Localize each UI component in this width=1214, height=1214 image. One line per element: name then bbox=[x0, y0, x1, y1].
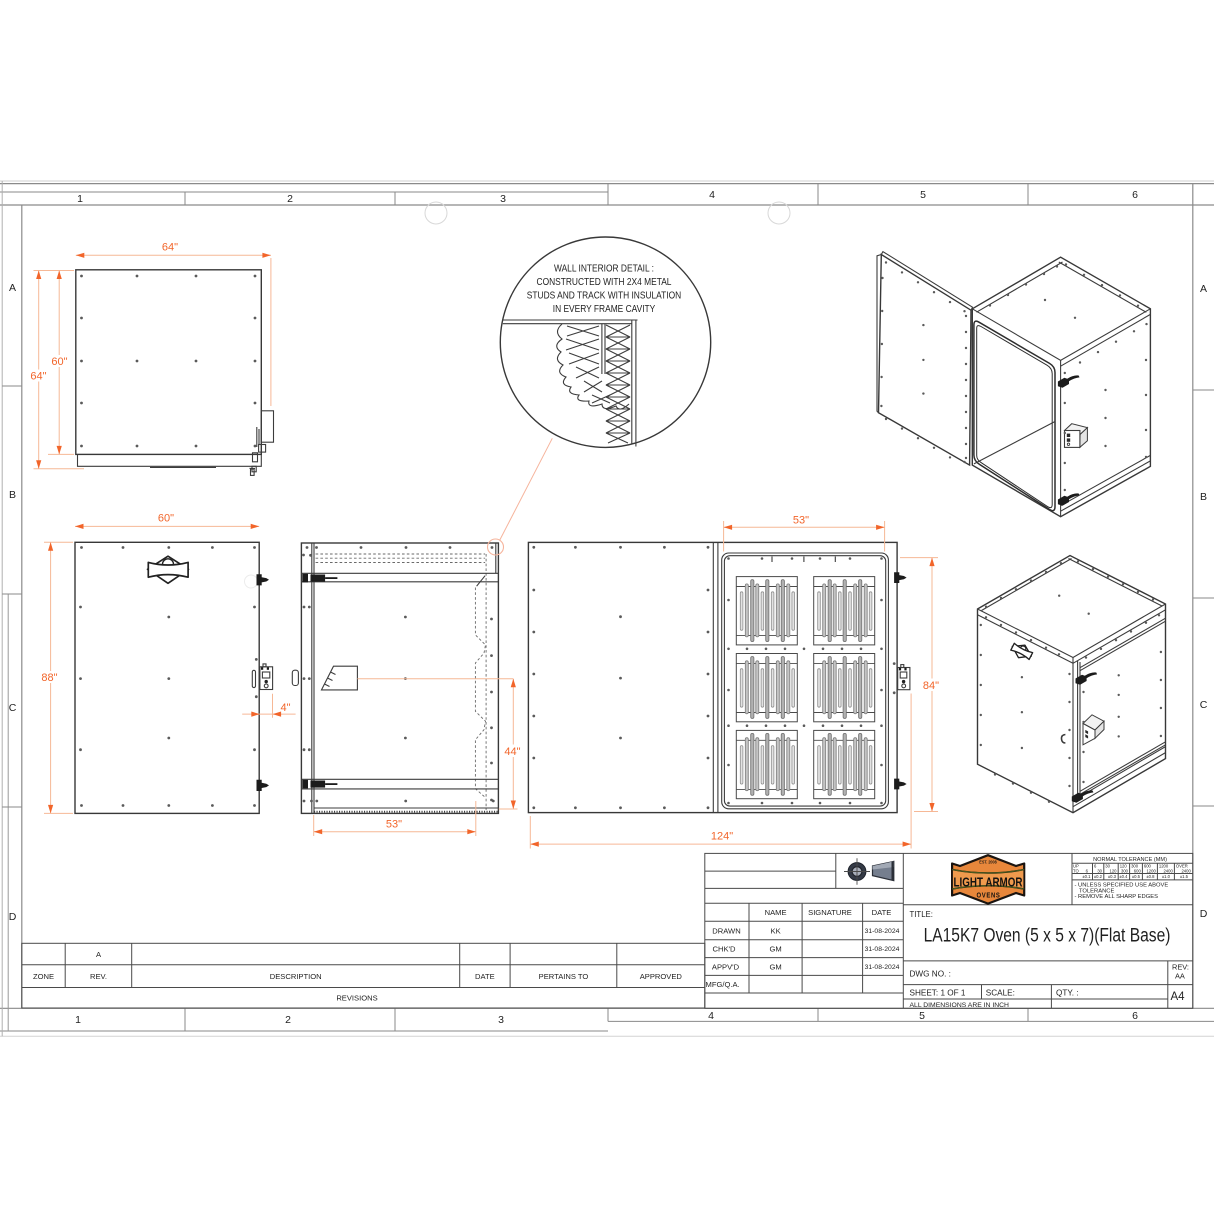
svg-text:6: 6 bbox=[1132, 1010, 1138, 1022]
svg-text:600: 600 bbox=[1134, 868, 1142, 873]
svg-text:3: 3 bbox=[498, 1014, 504, 1026]
svg-text:- REMOVE ALL SHARP EDGES: - REMOVE ALL SHARP EDGES bbox=[1075, 894, 1159, 900]
svg-text:±0.3: ±0.3 bbox=[1108, 874, 1117, 879]
svg-text:120: 120 bbox=[1110, 868, 1118, 873]
svg-text:REV.: REV. bbox=[90, 972, 107, 981]
svg-text:WALL INTERIOR DETAIL :: WALL INTERIOR DETAIL : bbox=[554, 263, 654, 274]
svg-text:REVISIONS: REVISIONS bbox=[336, 994, 377, 1003]
svg-text:STUDS AND TRACK WITH INSULATIO: STUDS AND TRACK WITH INSULATION bbox=[527, 290, 681, 301]
svg-text:±0.4: ±0.4 bbox=[1119, 874, 1128, 879]
svg-text:±1.5: ±1.5 bbox=[1180, 874, 1189, 879]
svg-text:1: 1 bbox=[77, 193, 83, 205]
svg-text:300: 300 bbox=[1121, 868, 1129, 873]
svg-text:ALL DIMENSIONS ARE IN INCH: ALL DIMENSIONS ARE IN INCH bbox=[910, 1002, 1010, 1009]
svg-text:4: 4 bbox=[708, 1010, 714, 1022]
svg-text:C: C bbox=[1200, 699, 1208, 711]
svg-text:CONSTRUCTED WITH 2X4 METAL: CONSTRUCTED WITH 2X4 METAL bbox=[537, 276, 672, 287]
svg-text:±0.2: ±0.2 bbox=[1094, 874, 1103, 879]
svg-text:DRAWN: DRAWN bbox=[712, 926, 740, 935]
svg-text:31-08-2024: 31-08-2024 bbox=[865, 946, 900, 953]
svg-text:1: 1 bbox=[75, 1014, 81, 1026]
svg-text:PERTAINS TO: PERTAINS TO bbox=[539, 972, 589, 981]
svg-text:D: D bbox=[9, 911, 17, 923]
svg-text:53": 53" bbox=[386, 819, 402, 831]
svg-text:±1.0: ±1.0 bbox=[1162, 874, 1171, 879]
svg-text:B: B bbox=[9, 489, 16, 501]
svg-text:4": 4" bbox=[280, 702, 290, 714]
svg-text:60": 60" bbox=[51, 356, 67, 368]
svg-text:TITLE:: TITLE: bbox=[910, 910, 933, 919]
svg-text:30: 30 bbox=[1097, 868, 1102, 873]
svg-text:60": 60" bbox=[158, 513, 174, 525]
svg-text:4: 4 bbox=[709, 189, 715, 201]
svg-text:SCALE:: SCALE: bbox=[986, 988, 1015, 997]
svg-text:APPROVED: APPROVED bbox=[640, 972, 683, 981]
svg-text:DATE: DATE bbox=[872, 908, 892, 917]
svg-text:A: A bbox=[9, 282, 16, 294]
svg-text:LA15K7 Oven (5 x 5 x 7)(Flat B: LA15K7 Oven (5 x 5 x 7)(Flat Base) bbox=[924, 924, 1171, 946]
svg-text:TO: TO bbox=[1073, 868, 1079, 873]
svg-text:B: B bbox=[1200, 491, 1207, 503]
svg-text:LIGHT ARMOR: LIGHT ARMOR bbox=[954, 876, 1024, 889]
svg-text:2: 2 bbox=[287, 193, 293, 205]
svg-text:GM: GM bbox=[769, 962, 781, 971]
svg-text:DWG NO. :: DWG NO. : bbox=[910, 970, 951, 979]
svg-text:DATE: DATE bbox=[475, 972, 495, 981]
svg-text:6: 6 bbox=[1132, 189, 1138, 201]
svg-text:KK: KK bbox=[771, 926, 781, 935]
svg-text:±0.8: ±0.8 bbox=[1146, 874, 1155, 879]
svg-text:ZONE: ZONE bbox=[33, 972, 54, 981]
svg-text:NAME: NAME bbox=[765, 908, 787, 917]
svg-text:NORMAL TOLERANCE (MM): NORMAL TOLERANCE (MM) bbox=[1093, 857, 1167, 863]
svg-text:124": 124" bbox=[711, 831, 733, 843]
svg-text:DESCRIPTION: DESCRIPTION bbox=[270, 972, 322, 981]
svg-text:SIGNATURE: SIGNATURE bbox=[808, 908, 852, 917]
svg-text:44": 44" bbox=[504, 746, 520, 758]
svg-text:GM: GM bbox=[769, 944, 781, 953]
svg-text:5: 5 bbox=[920, 189, 926, 201]
svg-text:64": 64" bbox=[30, 371, 46, 383]
svg-text:EST. 2008: EST. 2008 bbox=[979, 859, 997, 864]
svg-text:QTY. :: QTY. : bbox=[1056, 988, 1079, 997]
svg-text:88": 88" bbox=[41, 672, 57, 684]
svg-text:53": 53" bbox=[793, 514, 809, 526]
svg-text:2400: 2400 bbox=[1181, 868, 1191, 873]
svg-text:2400: 2400 bbox=[1163, 868, 1173, 873]
svg-text:D: D bbox=[1200, 908, 1208, 920]
svg-text:C: C bbox=[9, 702, 17, 714]
svg-text:APPV'D: APPV'D bbox=[712, 962, 740, 971]
svg-text:AA: AA bbox=[1175, 972, 1185, 981]
svg-text:SHEET: 1 OF 1: SHEET: 1 OF 1 bbox=[910, 988, 966, 997]
svg-text:±0.1: ±0.1 bbox=[1082, 874, 1091, 879]
svg-text:REV:: REV: bbox=[1172, 963, 1189, 972]
svg-text:2: 2 bbox=[285, 1014, 291, 1026]
svg-text:84": 84" bbox=[923, 680, 939, 692]
svg-text:5: 5 bbox=[919, 1010, 925, 1022]
svg-text:1200: 1200 bbox=[1146, 868, 1156, 873]
svg-text:A: A bbox=[1200, 283, 1207, 295]
svg-text:OVENS: OVENS bbox=[977, 892, 1001, 900]
svg-text:A4: A4 bbox=[1170, 991, 1185, 1003]
svg-text:±0.5: ±0.5 bbox=[1132, 874, 1141, 879]
svg-text:IN EVERY FRAME CAVITY: IN EVERY FRAME CAVITY bbox=[553, 303, 656, 314]
svg-text:MFG/Q.A.: MFG/Q.A. bbox=[706, 980, 740, 989]
svg-text:31-08-2024: 31-08-2024 bbox=[865, 964, 900, 971]
svg-text:CHK'D: CHK'D bbox=[713, 944, 736, 953]
svg-text:3: 3 bbox=[500, 193, 506, 205]
svg-text:64": 64" bbox=[162, 242, 178, 254]
svg-text:31-08-2024: 31-08-2024 bbox=[865, 928, 900, 935]
